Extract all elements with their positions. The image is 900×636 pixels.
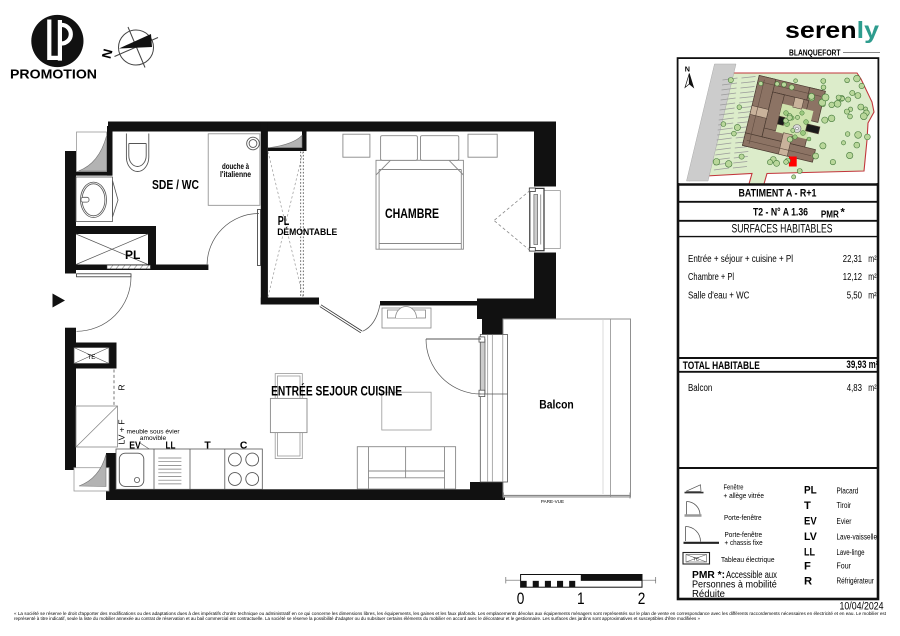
- svg-text:PL: PL: [125, 248, 140, 262]
- svg-text:m²: m²: [868, 254, 877, 265]
- svg-text:Tableau électrique: Tableau électrique: [721, 555, 775, 564]
- svg-text:C: C: [240, 441, 248, 452]
- svg-text:4,83: 4,83: [847, 383, 862, 394]
- svg-text:Chambre + Pl: Chambre + Pl: [688, 272, 734, 283]
- svg-text:PL: PL: [278, 214, 290, 228]
- svg-text:+ chassis fixe: + chassis fixe: [725, 538, 763, 547]
- svg-text:Placard: Placard: [837, 487, 859, 496]
- svg-text:Lave-linge: Lave-linge: [837, 548, 865, 557]
- svg-text:Evier: Evier: [837, 517, 852, 526]
- svg-text:amovible: amovible: [140, 435, 167, 442]
- svg-text:PROMOTION: PROMOTION: [10, 68, 97, 82]
- svg-text:T2 - N° A 1.36: T2 - N° A 1.36: [753, 207, 808, 219]
- svg-text:m²: m²: [868, 272, 877, 283]
- svg-text:EV: EV: [129, 441, 141, 452]
- svg-text:Balcon: Balcon: [688, 383, 712, 394]
- svg-text:Réfrigérateur: Réfrigérateur: [837, 577, 875, 586]
- svg-text:0: 0: [517, 589, 525, 608]
- svg-text:l'italienne: l'italienne: [220, 170, 252, 179]
- svg-text:BLANQUEFORT: BLANQUEFORT: [789, 49, 841, 58]
- svg-text:Lave-vaisselle: Lave-vaisselle: [837, 533, 878, 542]
- svg-text:LV: LV: [804, 531, 817, 543]
- svg-text:Salle d'eau + WC: Salle d'eau + WC: [688, 290, 749, 301]
- svg-text:LV + F: LV + F: [117, 420, 127, 445]
- svg-text:PARE-VUE: PARE-VUE: [541, 499, 564, 504]
- svg-text:TOTAL HABITABLE: TOTAL HABITABLE: [683, 360, 760, 372]
- svg-text:N: N: [685, 65, 690, 74]
- svg-text:12,12: 12,12: [843, 272, 862, 283]
- svg-text:SDE / WC: SDE / WC: [152, 178, 199, 192]
- svg-text:Tiroir: Tiroir: [837, 501, 852, 510]
- svg-text:22,31: 22,31: [843, 254, 862, 265]
- svg-text:LL: LL: [166, 441, 177, 452]
- svg-text:TE: TE: [693, 557, 699, 562]
- svg-text:T: T: [804, 500, 811, 512]
- svg-text:*: *: [841, 207, 846, 219]
- svg-text:2: 2: [638, 589, 646, 608]
- svg-text:F: F: [804, 560, 811, 572]
- svg-text:Porte-fenêtre: Porte-fenêtre: [724, 513, 762, 522]
- svg-text:R: R: [117, 384, 127, 390]
- svg-text:+ allège vitrée: + allège vitrée: [724, 491, 765, 500]
- svg-text:BATIMENT A - R+1: BATIMENT A - R+1: [739, 187, 817, 199]
- svg-text:m²: m²: [868, 383, 877, 394]
- svg-text:serenly: serenly: [785, 17, 879, 43]
- svg-text:Entrée + séjour + cuisine + Pl: Entrée + séjour + cuisine + Pl: [688, 254, 793, 265]
- svg-text:DÉMONTABLE: DÉMONTABLE: [277, 227, 337, 237]
- svg-text:39,93 m²: 39,93 m²: [846, 359, 878, 371]
- svg-text:TE: TE: [88, 354, 96, 361]
- svg-text:ENTRÉE SEJOUR CUISINE: ENTRÉE SEJOUR CUISINE: [271, 383, 402, 398]
- svg-text:PL: PL: [804, 485, 817, 497]
- svg-text:LL: LL: [804, 546, 815, 558]
- svg-text:Réduite: Réduite: [692, 589, 725, 600]
- svg-text:Four: Four: [837, 562, 852, 571]
- svg-text:Balcon: Balcon: [539, 399, 574, 412]
- svg-text:représenté à titre indicatif,: représenté à titre indicatif, seule la l…: [14, 616, 701, 621]
- svg-text:1: 1: [577, 589, 585, 608]
- svg-text:CHAMBRE: CHAMBRE: [385, 206, 439, 221]
- svg-text:EV: EV: [804, 516, 817, 528]
- svg-text:5,50: 5,50: [847, 290, 863, 301]
- svg-text:R: R: [804, 575, 812, 587]
- svg-text:SURFACES HABITABLES: SURFACES HABITABLES: [732, 222, 833, 236]
- svg-text:T: T: [204, 441, 211, 452]
- svg-text:PMR: PMR: [821, 210, 840, 221]
- svg-text:m²: m²: [868, 290, 877, 301]
